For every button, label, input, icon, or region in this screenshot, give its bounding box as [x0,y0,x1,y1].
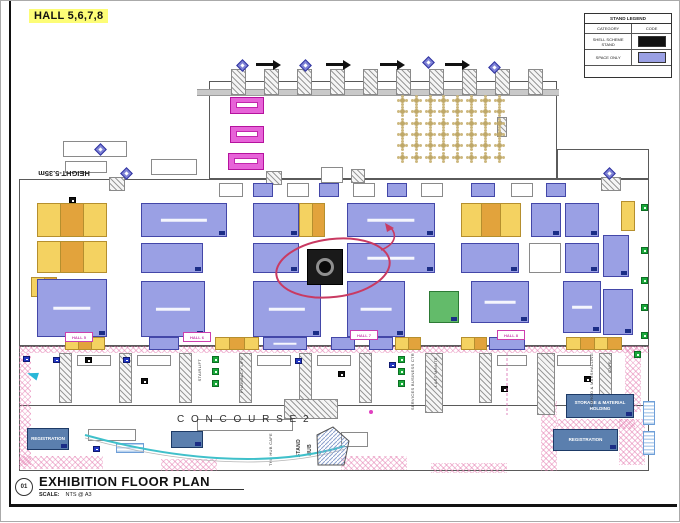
facility-icon [389,362,396,368]
stand [341,432,368,447]
table-seating-icon [469,132,474,137]
stand-number-tag [219,231,225,235]
stand-inner-box [234,158,258,165]
stand-label-bar [269,308,305,311]
stand-number-tag [626,412,632,416]
office-box: REGISTRATION [553,429,618,451]
service-label: CAFE [607,361,612,373]
exit-icon [641,332,648,339]
stand [219,183,243,197]
stand [511,183,533,197]
stand [137,355,171,366]
stand [149,337,179,350]
table-seating-icon [483,132,488,137]
stand-label-bar [53,307,90,310]
legend-col-category: CATEGORY [585,24,632,33]
table-seating-icon [414,121,419,126]
detail-number-bubble: 01 [15,478,33,496]
table-seating-icon [455,155,460,160]
legend-code-swatch-cell [632,34,671,49]
stand [253,203,299,237]
stand [603,289,633,335]
stand-number-tag [195,267,201,271]
stand-cell [462,338,474,349]
table-seating-icon [414,143,419,148]
structural-column-hatch [109,177,125,191]
legend-rows: SHELL SCHEME STANDSPACE ONLY [585,34,671,66]
stand-number-tag [427,231,433,235]
hall-marker: HALL 6 [183,332,211,342]
stand-number-tag [313,331,319,335]
hall-marker: HALL 5 [65,332,93,342]
blue-grid-table [643,401,655,425]
stand [37,203,107,237]
stand [563,281,601,333]
stand-label-bar [367,257,414,260]
table-seating-icon [400,121,405,126]
office-box: STORAGE & MATERIAL HOLDING [566,394,634,418]
stand [565,243,599,273]
office-box [171,431,203,448]
table-seating-icon [428,121,433,126]
stand [141,243,203,273]
stand-cell [408,338,421,349]
stand-logo-ring [316,258,334,276]
stand [299,203,325,237]
stand-legend: STAND LEGEND CATEGORY CODE SHELL SCHEME … [584,13,672,78]
structural-column-hatch [59,353,72,403]
fire-lane-hatch [557,419,635,429]
stand-hub-label-2: HUB [307,444,313,456]
floor-plan: C O N C O U R S E 2 HEIGHT-5.35m THE HUB… [1,1,680,523]
stand-number-tag [195,442,201,446]
stand-number-tag [625,329,631,333]
stand [253,243,299,273]
stand-label-bar [273,342,296,345]
stand [88,429,136,441]
stand-inner-box [236,102,258,109]
table-seating-icon [400,98,405,103]
wall-outline [557,149,649,179]
stand-number-tag [511,267,517,271]
flow-arrow-icon [380,63,397,66]
table-seating-icon [483,121,488,126]
stand-cell [229,338,243,349]
table-seating-icon [400,155,405,160]
exit-icon [641,204,648,211]
stand [471,281,529,323]
stand-cell [567,338,580,349]
structural-column-hatch [601,177,621,191]
stand [257,355,291,366]
stand-number-tag [291,231,297,235]
table-seating-icon [483,143,488,148]
stand [215,337,259,350]
table-seating-icon [428,143,433,148]
exit-icon [398,380,405,387]
stand-cell [580,338,594,349]
scale-label: SCALE: [39,492,59,498]
structural-column-hatch [479,353,492,403]
stand-cell [83,204,106,236]
stand-number-tag [591,267,597,271]
legend-color-swatch [638,52,666,63]
scale-value: NTS @ A3 [65,492,91,498]
stand [347,281,405,337]
structural-column-hatch [264,69,279,95]
structural-column-hatch [297,69,312,95]
service-label: LAST MINUTE [433,357,438,387]
table-seating-icon [428,98,433,103]
stand-cell [481,204,501,236]
office-box: REGISTRATION [27,428,69,450]
structural-column-hatch [462,69,477,95]
legend-empty-row [585,66,671,77]
table-seating-icon [469,121,474,126]
exit-icon [212,368,219,375]
stand [529,243,561,273]
stand-label-bar [161,219,207,222]
blue-grid-table [116,443,144,453]
stand-number-tag [451,317,457,321]
stand [497,355,527,366]
office-label [186,439,188,441]
stand [263,337,307,350]
stand [421,183,443,197]
stand-cell [500,204,520,236]
stand-cell [594,338,608,349]
stand [317,355,351,366]
utility-icon [85,357,92,363]
sheet-title-underline [39,489,244,490]
stand [77,355,111,366]
stand [461,337,487,350]
stand [461,243,519,273]
stand [230,126,264,143]
legend-row: SHELL SCHEME STAND [585,34,671,50]
structural-column-hatch [359,353,372,403]
stand-label-bar [156,308,190,311]
service-label: PHARMACY LIFE [239,357,244,393]
hub-cafe-label: THE HUB CAFE [268,433,273,466]
legend-header-row: CATEGORY CODE [585,24,671,34]
legend-color-swatch [638,36,666,47]
legend-code-swatch-cell [632,50,671,65]
stand [37,241,107,273]
stand-cell [216,338,229,349]
stand [321,167,343,183]
fire-lane-hatch [161,459,217,471]
stand [566,337,622,350]
legend-category: SPACE ONLY [585,50,632,65]
stand [228,153,264,170]
flow-arrow-icon [326,63,343,66]
stand-number-tag [553,231,559,235]
stand-cell [607,338,621,349]
table-seating-icon [469,155,474,160]
exit-icon [641,304,648,311]
structural-column-hatch [363,69,378,95]
legend-title: STAND LEGEND [585,14,671,24]
stand [387,183,407,197]
stand-number-tag [291,267,297,271]
exit-icon [212,356,219,363]
stand-number-tag [427,267,433,271]
table-seating-icon [483,155,488,160]
stand [253,281,321,337]
utility-icon [338,371,345,377]
stand [287,183,309,197]
stand [319,183,339,197]
table-seating-icon [497,121,502,126]
structural-column-hatch [495,69,510,95]
exit-icon [641,277,648,284]
stand-hub-label-1: STAND [296,439,302,457]
facility-icon [23,356,30,362]
exit-icon [398,356,405,363]
stand [546,183,566,197]
structural-column-hatch [231,69,246,95]
sheet-title: EXHIBITION FLOOR PLAN [39,474,210,489]
stand-number-tag [397,331,403,335]
stand [37,279,107,337]
service-label: SERVICES BUSINESS CTR [410,353,415,410]
stand-cell [312,204,325,236]
stand-cell [396,338,408,349]
table-seating-icon [497,143,502,148]
table-seating-icon [428,109,433,114]
stand [621,201,635,231]
table-seating-icon [400,132,405,137]
utility-icon [501,386,508,392]
stand-cell [60,242,83,272]
service-label: CARGO & MARSHALLING [589,353,594,407]
table-seating-icon [497,132,502,137]
table-seating-icon [428,155,433,160]
stand [531,203,561,237]
structural-column-hatch [429,69,444,95]
stand [230,97,264,114]
stand [151,159,197,175]
highlighted-stand [307,249,343,285]
stand-cell [300,204,312,236]
stand-cell [474,338,487,349]
legend-col-code: CODE [632,24,671,33]
structural-column-hatch [537,353,555,415]
stand [141,281,205,337]
facility-icon [93,446,100,452]
stand-cell [38,204,60,236]
stand-cell [244,338,258,349]
concourse-label: C O N C O U R S E 2 [177,414,311,425]
structural-column-hatch [528,69,543,95]
facility-icon [295,358,302,364]
structural-column-hatch [330,69,345,95]
stand [557,355,591,366]
office-label: REGISTRATION [568,436,604,444]
fire-lane-hatch [341,456,407,470]
utility-icon [141,378,148,384]
stand-number-tag [591,231,597,235]
table-seating-icon [497,98,502,103]
blue-grid-table [643,431,655,455]
office-label: REGISTRATION [30,435,66,443]
stand-cell [83,242,106,272]
structural-column-hatch [179,353,192,403]
stand-label-bar [572,306,592,309]
stand [429,291,459,323]
table-seating-icon [428,132,433,137]
fire-lane-hatch [19,456,103,469]
stand-cell [462,204,481,236]
table-seating-icon [497,109,502,114]
stand-number-tag [61,444,67,448]
stand-cell [60,204,83,236]
stand-label-bar [367,219,414,222]
stand-inner-box [236,131,258,138]
stand [347,203,435,237]
info-diamond-icon [422,56,435,69]
stand [603,235,629,277]
fire-lane-hatch [431,463,507,473]
stand-number-tag [593,327,599,331]
stand-label-bar [361,308,392,311]
stand [461,203,521,237]
stand-cell [38,242,60,272]
facility-icon [53,357,60,363]
stand [141,203,227,237]
stand [471,183,495,197]
table-seating-icon [469,98,474,103]
stand-number-tag [621,271,627,275]
exit-icon [634,351,641,358]
stand [353,183,375,197]
legend-category: SHELL SCHEME STAND [585,34,632,49]
stand [395,337,421,350]
table-seating-icon [441,155,446,160]
legend-row: SPACE ONLY [585,50,671,66]
exit-icon [398,368,405,375]
office-label: STORAGE & MATERIAL HOLDING [567,399,633,413]
hall-marker: HALL 8 [497,330,525,340]
table-seating-icon [414,98,419,103]
sheet-scale: SCALE:NTS @ A3 [39,492,92,498]
exit-icon [641,247,648,254]
table-seating-icon [414,155,419,160]
facility-icon [123,357,130,363]
service-label: STAIRLIFT [197,359,202,381]
stand-number-tag [521,317,527,321]
table-seating-icon [497,155,502,160]
structural-column-hatch [396,69,411,95]
table-seating-icon [455,121,460,126]
stand [347,243,435,273]
table-seating-icon [414,132,419,137]
exit-icon [212,380,219,387]
height-note: HEIGHT-5.35m [23,169,105,178]
stand-number-tag [99,331,105,335]
stand-number-tag [610,445,616,449]
table-seating-icon [483,98,488,103]
flow-arrow-icon [256,63,273,66]
utility-icon [69,197,76,203]
stand [565,203,599,237]
stand [253,183,273,197]
hall-marker: HALL 7 [350,330,378,340]
flow-arrow-icon [445,63,462,66]
structural-column-hatch [351,169,365,183]
stand-label-bar [485,301,516,304]
